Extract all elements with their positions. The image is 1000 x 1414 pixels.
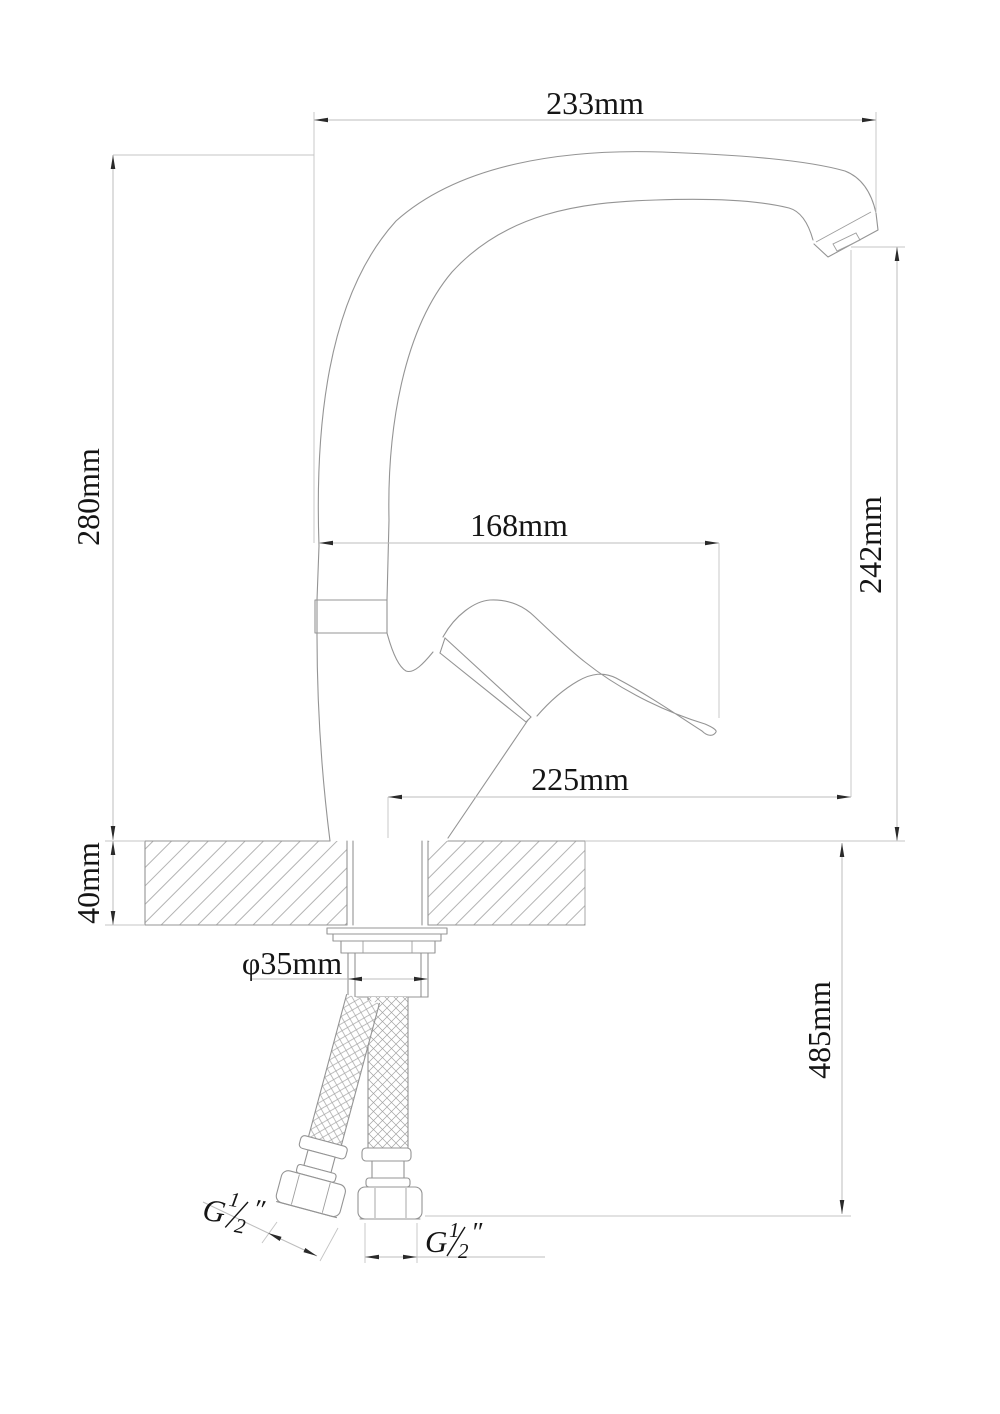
dimension-outlet-height: 242mm	[851, 247, 905, 841]
dimension-right-thread: G 1 2 ″	[365, 1217, 545, 1263]
washer-plates	[327, 928, 447, 941]
technical-drawing-page: 233mm 280mm 242mm 168mm 225mm 40mm 485mm	[0, 0, 1000, 1414]
thread-label-left: G 1 2 ″	[199, 1183, 268, 1242]
right-hose-ring	[366, 1178, 410, 1187]
spout-outer-profile	[317, 152, 876, 841]
svg-text:1: 1	[227, 1187, 242, 1212]
svg-text:″: ″	[471, 1217, 483, 1247]
thread-label-right: G 1 2 ″	[425, 1217, 483, 1263]
shank-tube	[348, 953, 428, 997]
neck-collar	[315, 600, 387, 633]
spout-tip-seam	[816, 212, 871, 242]
dimension-label: 280mm	[70, 448, 106, 546]
dimension-tip-to-body: 225mm	[388, 250, 851, 838]
countertop-hatch-left	[145, 841, 347, 925]
dimension-label: 168mm	[470, 507, 568, 543]
faucet-body	[315, 152, 878, 841]
spout-tip-cap	[814, 213, 878, 257]
dimension-label: 40mm	[70, 842, 106, 924]
svg-text:2: 2	[458, 1239, 469, 1263]
dimension-line	[268, 1233, 317, 1256]
shank-walls	[347, 841, 428, 925]
svg-text:G: G	[425, 1224, 447, 1259]
right-hose-neck	[372, 1161, 404, 1178]
right-hose-nut	[358, 1187, 422, 1219]
body-base-edge	[448, 720, 528, 838]
extension-line	[320, 1228, 338, 1261]
countertop-hatch-right	[428, 841, 585, 925]
locknut	[341, 941, 435, 953]
dimension-label: 485mm	[801, 981, 837, 1079]
svg-text:G: G	[200, 1192, 228, 1230]
extension-line	[262, 1222, 277, 1243]
handle-lever	[443, 600, 716, 735]
dimension-label: 242mm	[852, 496, 888, 594]
spout-inner-profile	[387, 199, 813, 600]
dimension-label: φ35mm	[242, 945, 342, 981]
countertop	[145, 841, 585, 925]
dimension-label: 225mm	[531, 761, 629, 797]
handle-stem	[440, 638, 531, 722]
svg-text:″: ″	[250, 1193, 267, 1225]
dimension-label: 233mm	[546, 85, 644, 121]
dimension-mounting-hole: φ35mm	[242, 945, 428, 981]
dimension-spout-reach: 233mm	[314, 85, 876, 543]
faucet-dimension-drawing: 233mm 280mm 242mm 168mm 225mm 40mm 485mm	[0, 0, 1000, 1414]
dimension-handle-reach: 168mm	[319, 507, 719, 718]
dimension-deck-thickness: 40mm	[70, 841, 145, 925]
right-hose-ferrule	[362, 1148, 411, 1161]
aerator	[833, 233, 860, 251]
body-right-profile	[387, 633, 433, 672]
dimension-overall-height: 280mm	[70, 155, 314, 840]
